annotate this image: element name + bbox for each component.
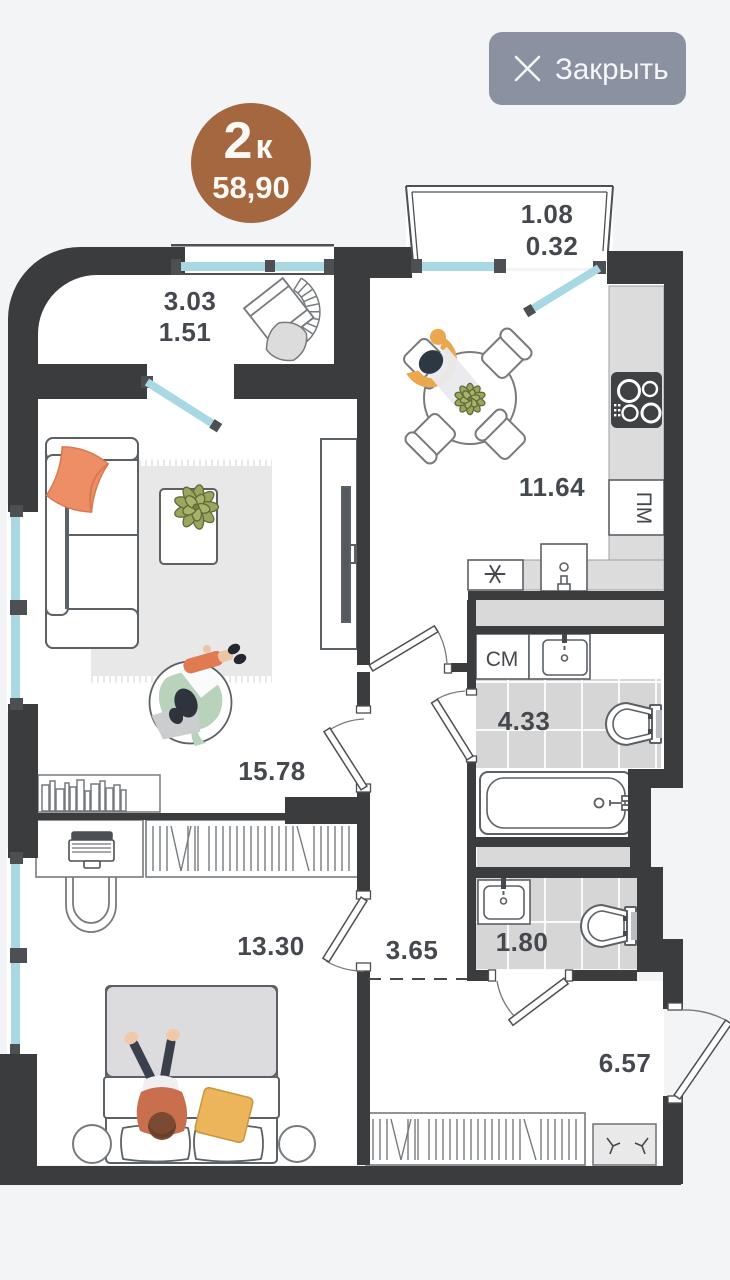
- svg-text:0.32: 0.32: [526, 231, 579, 261]
- svg-text:3.03: 3.03: [164, 286, 217, 316]
- svg-text:1.51: 1.51: [159, 317, 212, 347]
- svg-text:11.64: 11.64: [519, 472, 585, 502]
- svg-text:4.33: 4.33: [498, 706, 551, 736]
- svg-text:1.08: 1.08: [521, 199, 574, 229]
- svg-text:Закрыть: Закрыть: [555, 53, 669, 86]
- svg-text:1.80: 1.80: [496, 927, 549, 957]
- svg-text:15.78: 15.78: [238, 756, 306, 786]
- svg-text:6.57: 6.57: [599, 1048, 652, 1078]
- svg-text:ПМ: ПМ: [632, 492, 655, 525]
- svg-text:13.30: 13.30: [237, 931, 305, 961]
- svg-text:58,90: 58,90: [212, 170, 290, 205]
- svg-text:СМ: СМ: [486, 648, 518, 671]
- svg-text:3.65: 3.65: [386, 935, 439, 965]
